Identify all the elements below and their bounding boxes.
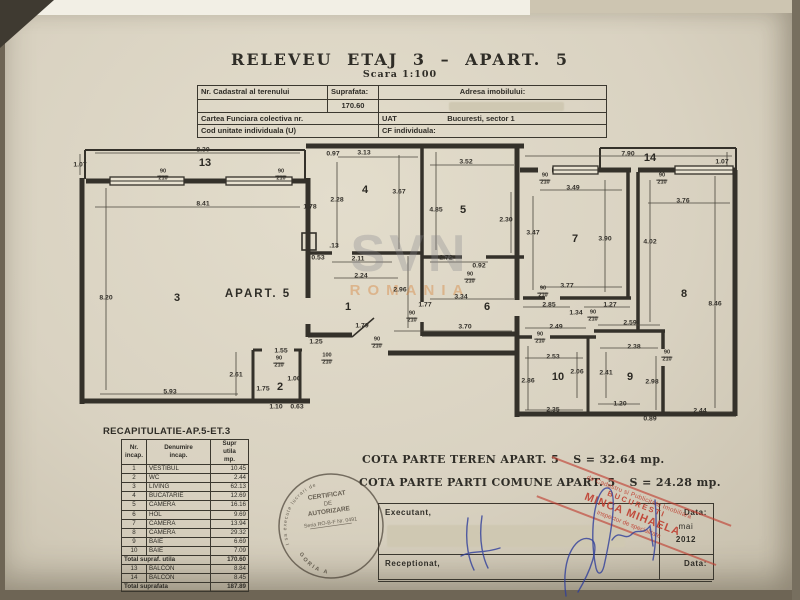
dimension-label: 8.30 <box>196 147 209 154</box>
door-size-label: 100210 <box>321 354 332 367</box>
cota-teren-line: COTA PARTE TEREN APART. 5S = 32.64 mp. <box>362 453 665 466</box>
dimension-label: 3.49 <box>566 185 579 192</box>
dimension-label: 2.06 <box>570 369 583 376</box>
dimension-label: 0.97 <box>326 151 339 158</box>
dimension-label: 1.55 <box>274 348 287 355</box>
bottom-rule <box>378 581 712 582</box>
room-number: 6 <box>484 301 490 313</box>
adresa-label: Adresa imobilului: <box>379 86 606 100</box>
table-row: 3LIVING62.13 <box>122 483 249 492</box>
table-row: 2WC2.44 <box>122 474 249 483</box>
dimension-label: 3.76 <box>676 198 689 205</box>
table-row: 7CAMERA13.94 <box>122 519 249 528</box>
door-size-label: 90210 <box>539 174 550 187</box>
receptionat-label: Receptionat, <box>385 559 440 568</box>
table-row: 5CAMERA16.16 <box>122 501 249 510</box>
table-row: Total suprafata187.89 <box>122 583 249 592</box>
room-number: 9 <box>627 371 633 383</box>
room-number: 2 <box>277 381 283 393</box>
room-number: 13 <box>199 157 211 169</box>
table-row: 1VESTIBUL10.45 <box>122 465 249 474</box>
dimension-label: 2.61 <box>229 372 242 379</box>
dimension-label: 3.77 <box>560 283 573 290</box>
door-size-label: 90210 <box>534 333 545 346</box>
dimension-label: 2.30 <box>499 217 512 224</box>
dimension-label: 3.90 <box>598 236 611 243</box>
table-row: 10BAIE7.09 <box>122 546 249 555</box>
suprafata-value: 170.60 <box>328 100 379 113</box>
room-number: 4 <box>362 184 368 196</box>
page-title: RELEVEU ETAJ 3 – APART. 5 <box>0 50 800 69</box>
background-sheet-edge <box>30 0 530 15</box>
dimension-label: 1.10 <box>269 404 282 411</box>
recap-header-cell: Denumire incap. <box>147 440 211 465</box>
dimension-label: 2.38 <box>627 344 640 351</box>
recap-table: Nr. incap.Denumire incap.Supr utila mp. … <box>121 439 249 592</box>
dimension-label: 2.28 <box>330 197 343 204</box>
photo-edge-right <box>792 0 800 600</box>
room-number: 3 <box>174 292 180 304</box>
dimension-label: 2.96 <box>393 287 406 294</box>
dimension-label: 8.20 <box>99 295 112 302</box>
room-number: 8 <box>681 288 687 300</box>
dimension-label: 1.25 <box>309 339 322 346</box>
name-redaction <box>387 525 625 547</box>
dimension-label: 1.07 <box>715 159 728 166</box>
uat-cell: UAT Bucuresti, sector 1 <box>379 113 606 125</box>
nr-cadastral-value <box>198 100 328 113</box>
door-size-label: 90210 <box>157 170 168 183</box>
dimension-label: 1.78 <box>303 204 316 211</box>
dimension-label: 0.53 <box>311 255 324 262</box>
door-size-label: 90210 <box>273 357 284 370</box>
door-size-label: 90210 <box>656 174 667 187</box>
dimension-label: 1.77 <box>418 302 431 309</box>
dimension-label: 3.52 <box>459 159 472 166</box>
dimension-label: 2.49 <box>549 324 562 331</box>
dimension-label: 2.35 <box>546 407 559 414</box>
recap-header-cell: Supr utila mp. <box>211 440 249 465</box>
dimension-label: 2.86 <box>521 378 534 385</box>
dimension-label: 2.11 <box>352 256 365 263</box>
dimension-label: 3.47 <box>526 230 539 237</box>
dimension-label: 1.27 <box>603 302 616 309</box>
cf-individuala-label: CF individuala: <box>379 125 606 137</box>
door-size-label: 90210 <box>406 312 417 325</box>
cod-unitate-label: Cod unitate individuala (U) <box>198 125 379 137</box>
document-photo: RELEVEU ETAJ 3 – APART. 5 Scara 1:100 Nr… <box>0 0 800 600</box>
dimension-label: 2.53 <box>546 354 559 361</box>
cota-teren-value: S = 32.64 mp. <box>573 453 664 466</box>
door-size-label: 90210 <box>661 351 672 364</box>
cota-teren-label: COTA PARTE TEREN APART. 5 <box>362 453 559 466</box>
background-sheet-edge-right <box>530 0 800 13</box>
dimension-label: .13 <box>329 243 338 250</box>
dimension-label: 0.63 <box>290 404 303 411</box>
cartea-funciara-label: Cartea Funciara colectiva nr. <box>198 113 379 125</box>
dimension-label: 4.02 <box>643 239 656 246</box>
dimension-label: 2.72 <box>439 255 452 262</box>
dimension-label: 1.75 <box>256 386 269 393</box>
room-number: 10 <box>552 371 564 383</box>
dimension-label: 2.44 <box>693 408 706 415</box>
door-size-label: 90210 <box>464 273 475 286</box>
address-redaction <box>449 102 564 111</box>
table-row: 8CAMERA29.32 <box>122 528 249 537</box>
dimension-label: 7.90 <box>621 151 634 158</box>
dimension-label: 2.59 <box>623 320 636 327</box>
table-row: 6HOL9.69 <box>122 510 249 519</box>
room-number: 5 <box>460 204 466 216</box>
dimension-label: 1.20 <box>613 401 626 408</box>
uat-value: Bucuresti, sector 1 <box>371 114 591 123</box>
dimension-label: 3.70 <box>458 324 471 331</box>
table-row: 9BAIE6.69 <box>122 537 249 546</box>
dimension-label: 5.93 <box>163 389 176 396</box>
dimension-label: 4.85 <box>429 207 442 214</box>
table-row: Total supraf. utila170.60 <box>122 555 249 564</box>
table-row: 14BALCON8.45 <box>122 573 249 582</box>
dimension-label: 2.24 <box>354 273 367 280</box>
header-table: Nr. Cadastral al terenului Suprafata: Ad… <box>197 85 607 138</box>
dimension-label: 3.34 <box>454 294 467 301</box>
door-size-label: 90210 <box>275 170 286 183</box>
dimension-label: 8.46 <box>708 301 721 308</box>
room-number: 7 <box>572 233 578 245</box>
executant-label: Executant, <box>385 508 431 517</box>
door-size-label: 90210 <box>371 338 382 351</box>
dimension-label: 2.85 <box>542 302 555 309</box>
room-number: 14 <box>644 152 656 164</box>
dimension-label: 2.41 <box>599 370 612 377</box>
adresa-value <box>379 100 606 113</box>
dimension-label: 1.07 <box>73 162 86 169</box>
dimension-label: 1.00 <box>287 376 300 383</box>
table-row: 4BUCATARIE12.69 <box>122 492 249 501</box>
nr-cadastral-label: Nr. Cadastral al terenului <box>198 86 328 100</box>
dimension-label: 3.67 <box>392 189 405 196</box>
dimension-label: 3.13 <box>357 150 370 157</box>
room-number: 1 <box>345 301 351 313</box>
door-size-label: 90210 <box>537 287 548 300</box>
dimension-label: 0.89 <box>643 416 656 423</box>
dimension-label: 2.98 <box>645 379 658 386</box>
cota-comune-value: S = 24.28 mp. <box>630 476 721 489</box>
dimension-label: 1.79 <box>355 323 368 330</box>
dimension-label: 8.41 <box>196 201 209 208</box>
door-size-label: 90210 <box>587 311 598 324</box>
scale-label: Scara 1:100 <box>0 69 800 80</box>
dimension-label: 1.34 <box>569 310 582 317</box>
recap-header-cell: Nr. incap. <box>122 440 147 465</box>
table-row: 13BALCON8.84 <box>122 564 249 573</box>
recap-table-title: RECAPITULATIE-AP.5-ET.3 <box>103 426 230 437</box>
apartment-label: APART. 5 <box>225 288 291 300</box>
suprafata-label: Suprafata: <box>328 86 379 100</box>
dimension-label: 0.92 <box>472 263 485 270</box>
